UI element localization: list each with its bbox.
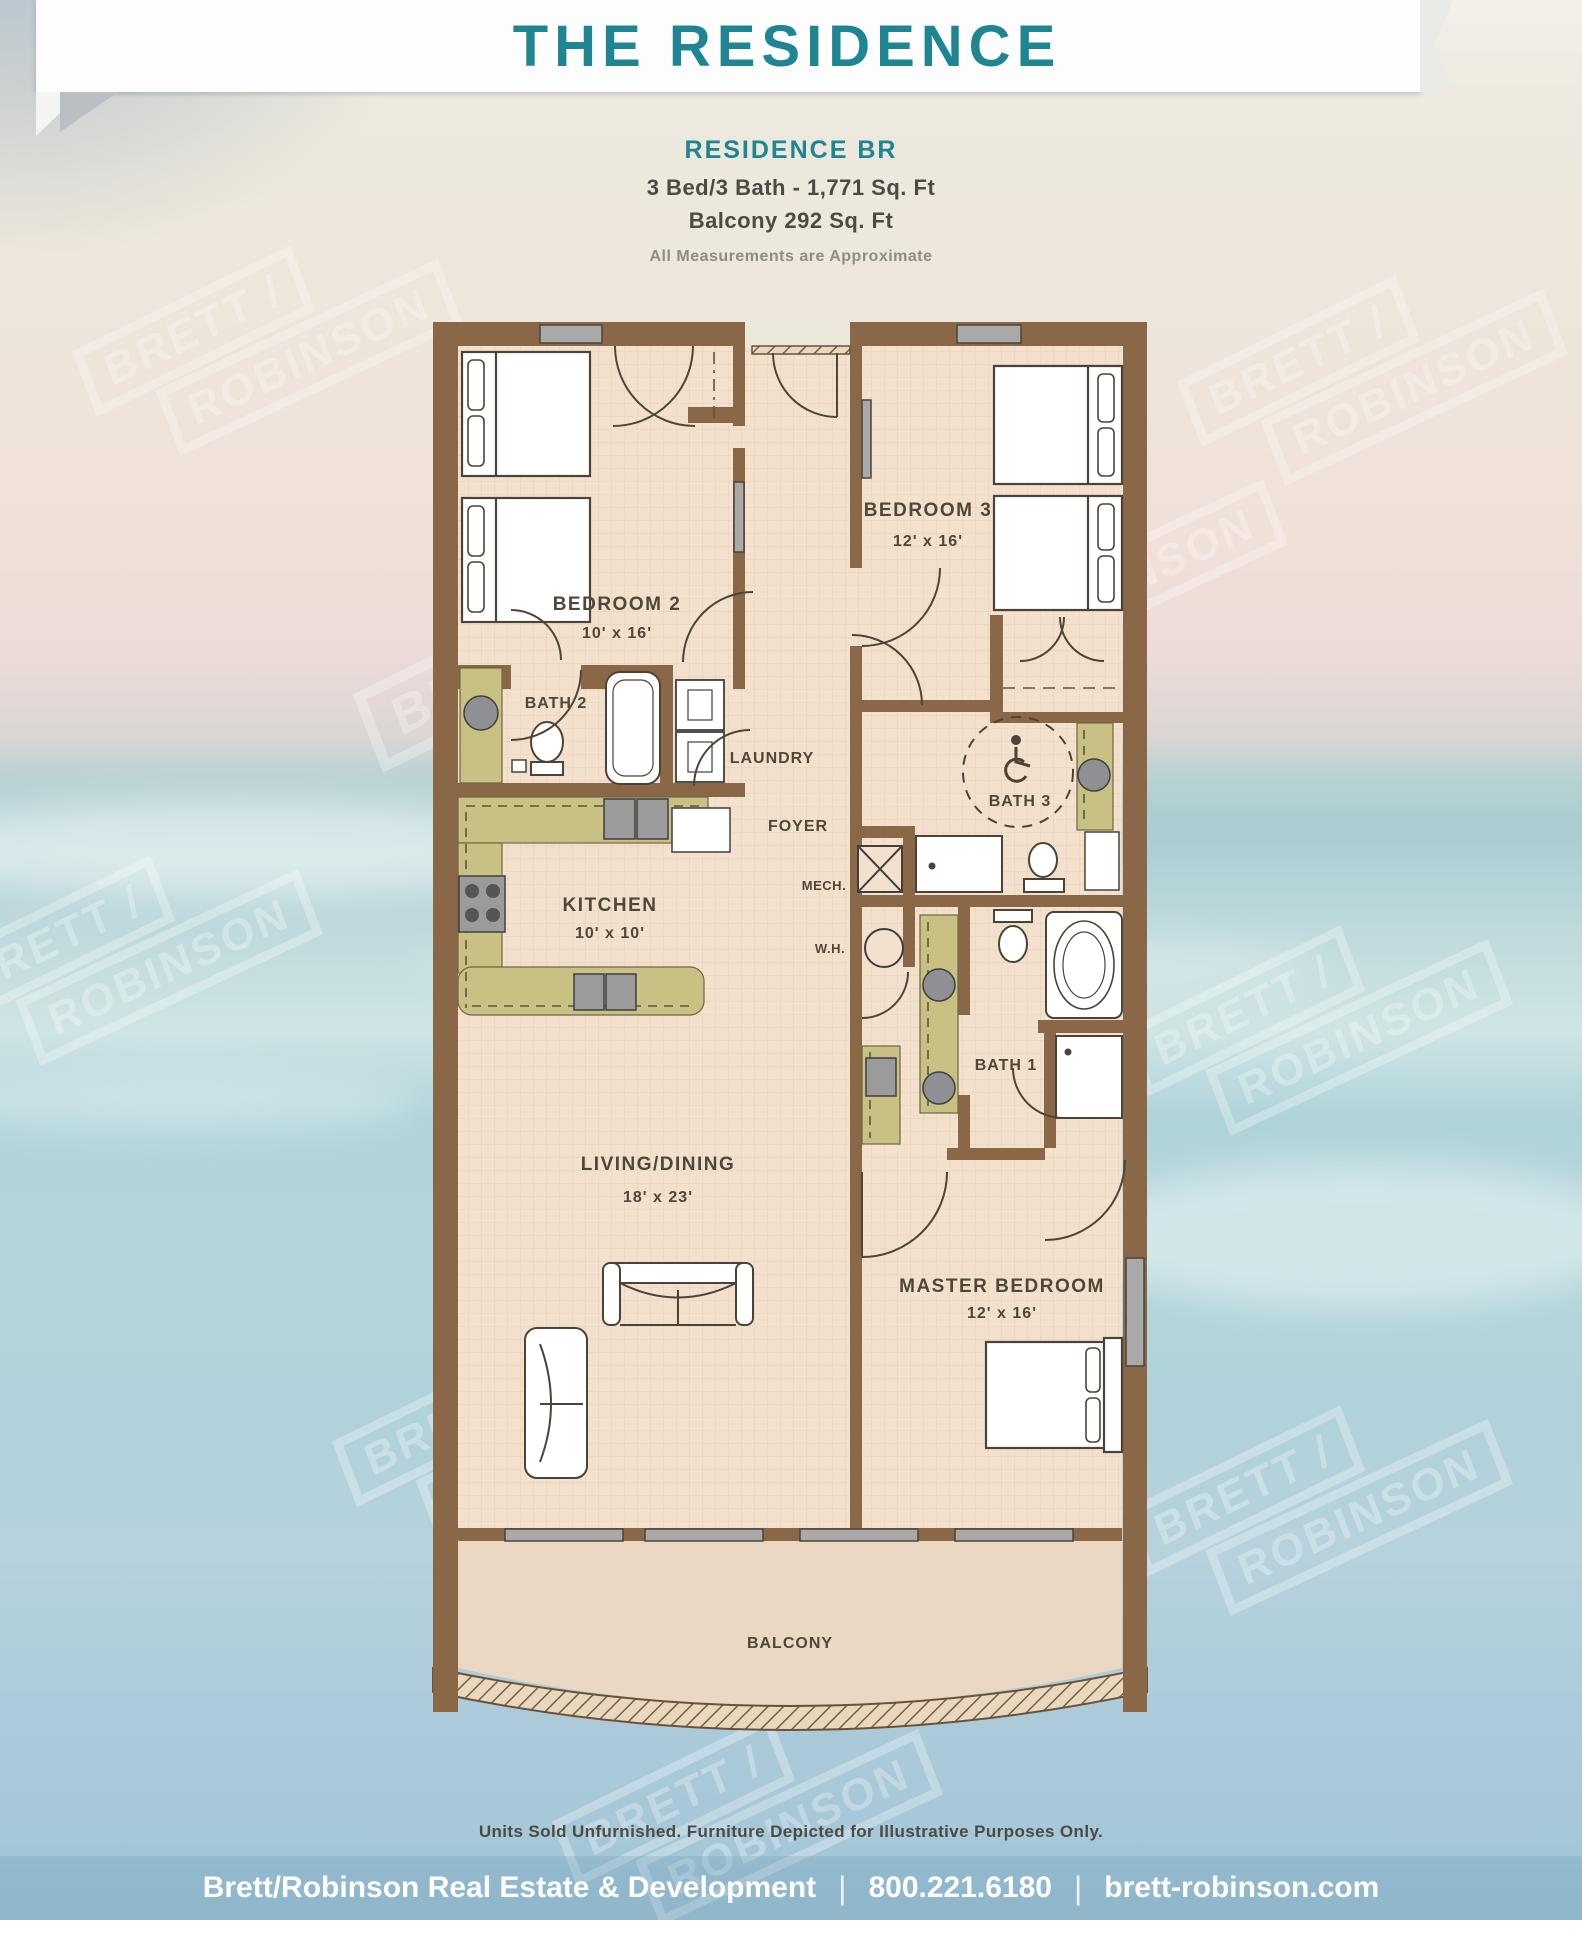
entry-recess xyxy=(745,318,850,347)
foyer-label: FOYER xyxy=(768,818,828,835)
bath1-shower xyxy=(1056,1036,1122,1118)
bath3-shower xyxy=(916,836,1002,892)
water-heater xyxy=(865,929,903,967)
kitchen-counter-top xyxy=(458,797,708,843)
armchair xyxy=(525,1328,587,1478)
floor-plan: BEDROOM 2 10' x 16' BEDROOM 3 12' x 16' … xyxy=(0,0,1582,1920)
balcony-slider xyxy=(505,1529,623,1541)
website-link[interactable]: brett-robinson.com xyxy=(1104,1871,1379,1905)
stove xyxy=(459,876,505,932)
laundry-label: LAUNDRY xyxy=(730,750,815,767)
living-label: LIVING/DINING xyxy=(581,1154,736,1175)
bath1-sink xyxy=(923,1072,955,1104)
balcony-slider xyxy=(800,1529,918,1541)
kitchen-sink xyxy=(604,799,635,839)
bath1-sink xyxy=(923,969,955,1001)
bath2-label: BATH 2 xyxy=(525,695,588,712)
bath2-tub xyxy=(606,672,660,784)
balcony-label: BALCONY xyxy=(747,1635,833,1652)
bath1-toilet-tank xyxy=(994,910,1032,922)
dishwasher xyxy=(672,808,730,852)
living-dims: 18' x 23' xyxy=(623,1189,693,1206)
phone-number[interactable]: 800.221.6180 xyxy=(868,1871,1052,1905)
bedroom2-bed xyxy=(462,352,590,476)
kitchen-label: KITCHEN xyxy=(563,895,658,916)
bath2-sink xyxy=(464,696,498,730)
bedroom2-dims: 10' x 16' xyxy=(582,625,652,642)
balcony-slider xyxy=(955,1529,1073,1541)
kitchen-dims: 10' x 10' xyxy=(575,925,645,942)
island-cooktop xyxy=(574,974,604,1010)
bedroom2-window xyxy=(540,325,602,343)
wet-bar-fridge xyxy=(866,1058,896,1096)
bedroom3-window xyxy=(957,325,1021,343)
master-window xyxy=(1126,1258,1144,1366)
entry-threshold xyxy=(752,346,850,354)
bath2-toilet-tank xyxy=(531,762,563,775)
bedroom3-label: BEDROOM 3 xyxy=(864,500,993,521)
bath3-toilet-bowl xyxy=(1029,843,1057,877)
kitchen-sink xyxy=(637,799,668,839)
bath3-sink xyxy=(1078,759,1110,791)
bedroom2-label: BEDROOM 2 xyxy=(553,594,682,615)
bedroom2-pocket-door xyxy=(734,482,744,552)
footer-separator: | xyxy=(1074,1870,1082,1907)
master-bed xyxy=(986,1338,1122,1452)
footer-separator: | xyxy=(838,1870,846,1907)
bath3-label: BATH 3 xyxy=(989,793,1052,810)
master-dims: 12' x 16' xyxy=(967,1305,1037,1322)
company-name: Brett/Robinson Real Estate & Development xyxy=(203,1871,816,1905)
unfurnished-disclaimer: Units Sold Unfurnished. Furniture Depict… xyxy=(0,1822,1582,1842)
bath3-bench xyxy=(1085,832,1119,890)
footer-bar: Brett/Robinson Real Estate & Development… xyxy=(0,1856,1582,1920)
bedroom3-bed xyxy=(994,496,1122,610)
bedroom3-bed xyxy=(994,366,1122,484)
bath3-toilet-tank xyxy=(1024,879,1064,892)
wh-label: W.H. xyxy=(815,941,845,956)
garden-tub xyxy=(1046,912,1122,1018)
bath2-toilet-bowl xyxy=(531,722,563,762)
mech-label: MECH. xyxy=(802,878,846,893)
bedroom3-pocket-door xyxy=(862,400,871,478)
bath1-toilet-bowl xyxy=(999,926,1027,962)
bath1-label: BATH 1 xyxy=(975,1057,1038,1074)
bedroom3-dims: 12' x 16' xyxy=(893,533,963,550)
master-label: MASTER BEDROOM xyxy=(899,1276,1105,1297)
balcony-slider xyxy=(645,1529,763,1541)
island-cooktop xyxy=(606,974,636,1010)
